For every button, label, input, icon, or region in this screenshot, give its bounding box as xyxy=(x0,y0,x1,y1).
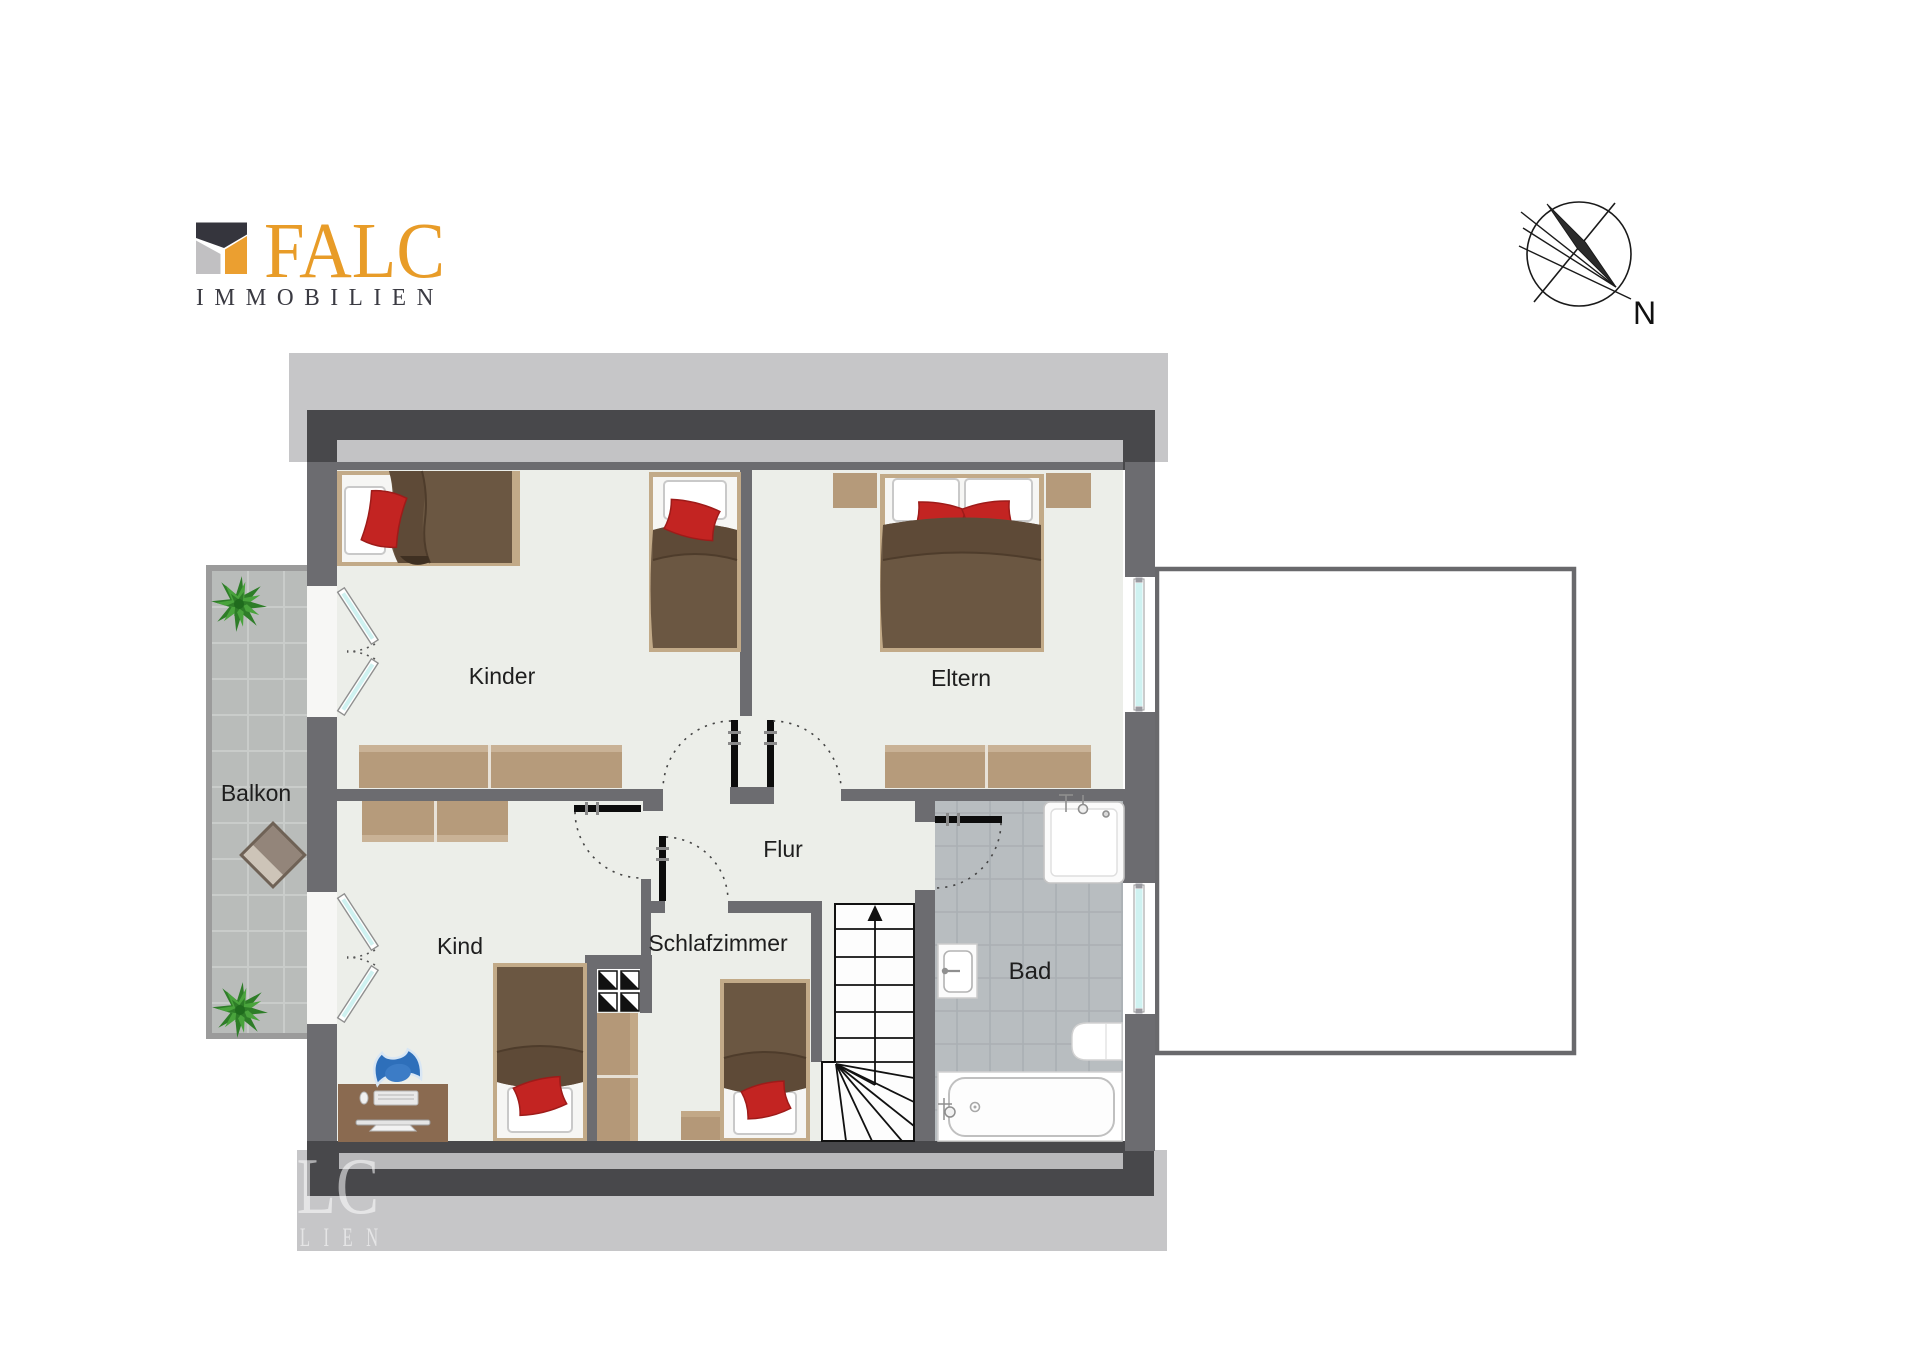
svg-text:N: N xyxy=(1633,295,1656,331)
svg-text:Bad: Bad xyxy=(1009,958,1052,985)
svg-text:Flur: Flur xyxy=(763,836,803,862)
svg-text:Eltern: Eltern xyxy=(931,665,991,691)
svg-text:IMMOBILIEN: IMMOBILIEN xyxy=(196,285,444,311)
svg-text:FALC: FALC xyxy=(219,1143,379,1231)
svg-text:IMMOBILIEN: IMMOBILIEN xyxy=(156,1223,392,1252)
svg-text:Schlafzimmer: Schlafzimmer xyxy=(648,930,788,956)
svg-text:Kinder: Kinder xyxy=(469,663,536,689)
svg-text:Balkon: Balkon xyxy=(221,780,291,806)
svg-text:Kind: Kind xyxy=(437,933,483,959)
svg-text:FALC: FALC xyxy=(264,208,445,295)
